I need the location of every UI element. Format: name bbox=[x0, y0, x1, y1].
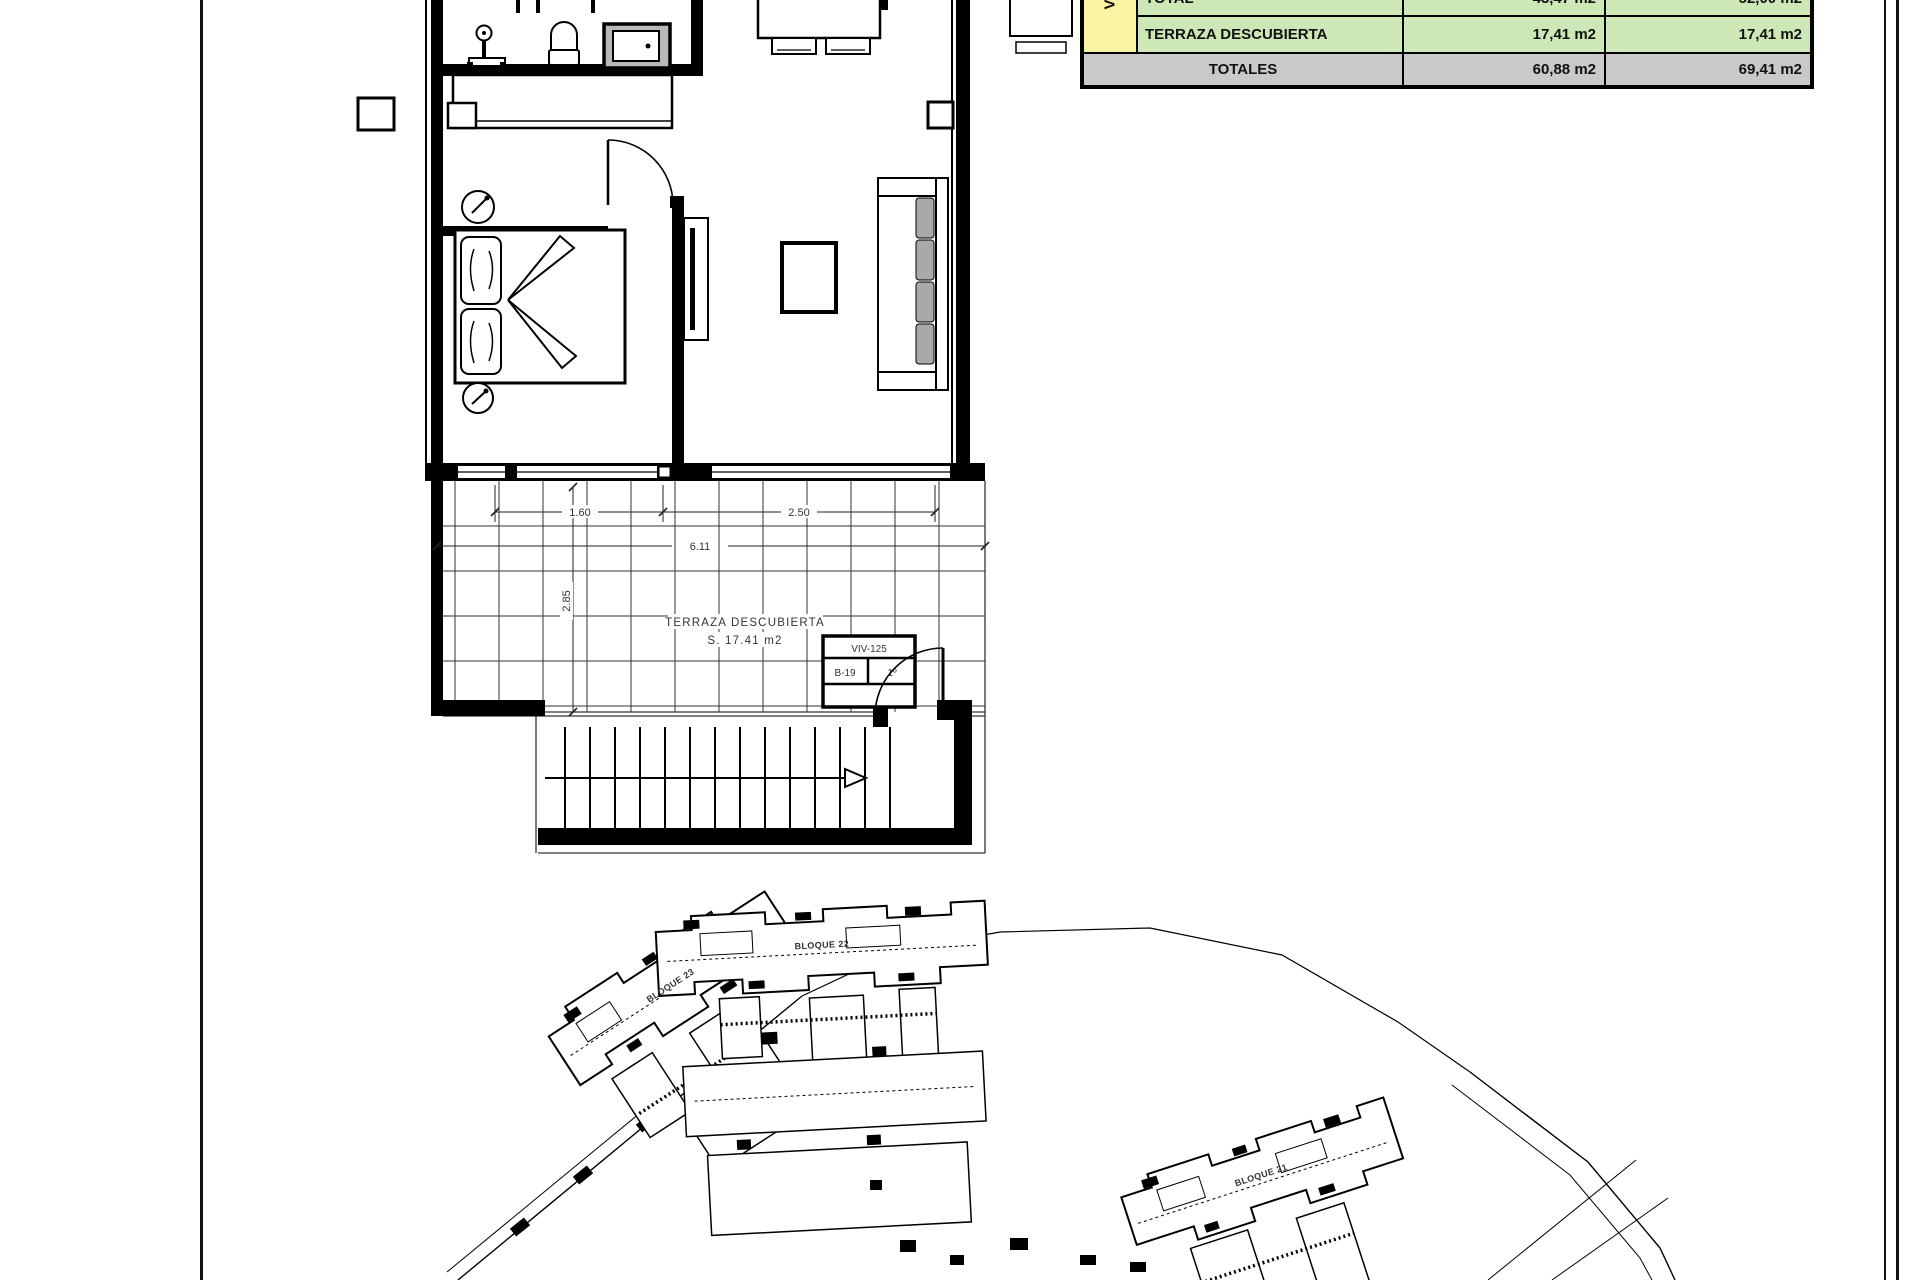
row-terraza-util: 17,41 m2 bbox=[1403, 16, 1605, 53]
exterior-pillar bbox=[358, 98, 394, 130]
sofa bbox=[878, 178, 948, 390]
staircase bbox=[545, 727, 890, 828]
group-rotated-label: V bbox=[1102, 0, 1119, 10]
bathroom-fixtures bbox=[467, 22, 670, 68]
unit-block: B-19 bbox=[834, 668, 856, 679]
balcony-stub bbox=[1010, 0, 1072, 36]
row-terraza-label: TERRAZA DESCUBIERTA bbox=[1137, 16, 1403, 53]
unit-stamp: VIV-125 B-19 1º bbox=[823, 636, 915, 707]
tv-cabinet bbox=[684, 218, 708, 340]
row-total-const: 52,00 m2 bbox=[1605, 0, 1811, 16]
wardrobe bbox=[358, 75, 672, 130]
dim-terrace-depth: 2.85 bbox=[561, 590, 573, 611]
dimension-labels: 1.60 2.50 6.11 2.85 bbox=[560, 505, 817, 620]
stair-direction-arrow bbox=[845, 769, 866, 787]
dim-window-left: 1.60 bbox=[569, 507, 590, 519]
bed bbox=[455, 230, 625, 383]
site-plan: BLOQUE 23 BLOQUE 22 BLOQUE 21 bbox=[447, 881, 1675, 1280]
svg-text:TERRAZA DESCUBIERTA: TERRAZA DESCUBIERTA bbox=[665, 617, 825, 629]
pillow bbox=[461, 237, 501, 304]
toilet bbox=[551, 22, 577, 52]
sink-base bbox=[469, 58, 505, 66]
building-bloque-21 bbox=[1117, 1097, 1438, 1280]
dim-facade-total: 6.11 bbox=[690, 541, 711, 553]
svg-text:S. 17.41 m2: S. 17.41 m2 bbox=[707, 635, 782, 647]
unit-number: VIV-125 bbox=[851, 644, 887, 655]
row-terraza-const: 17,41 m2 bbox=[1605, 16, 1811, 53]
pillow bbox=[461, 309, 501, 374]
row-total-label: TOTAL bbox=[1137, 0, 1403, 16]
row-total-util: 43,47 m2 bbox=[1403, 0, 1605, 16]
totals-util: 60,88 m2 bbox=[1403, 53, 1605, 86]
totals-const: 69,41 m2 bbox=[1605, 53, 1811, 86]
terrace-label: TERRAZA DESCUBIERTA S. 17.41 m2 bbox=[665, 614, 825, 647]
coffee-table bbox=[782, 243, 836, 312]
areas-table-group-cell: V bbox=[1083, 0, 1137, 53]
dim-window-right: 2.50 bbox=[788, 507, 809, 519]
dining-table bbox=[758, 0, 880, 54]
bedroom-door bbox=[608, 140, 673, 205]
totals-label: TOTALES bbox=[1083, 53, 1403, 86]
drawing-canvas: 1.60 2.50 6.11 2.85 TERRAZA DESCUBIERTA … bbox=[0, 0, 1920, 1280]
building-bloque-22 bbox=[655, 901, 1001, 1238]
areas-table: V TOTAL 43,47 m2 52,00 m2 TERRAZA DESCUB… bbox=[1080, 0, 1814, 89]
sheet-page: 1.60 2.50 6.11 2.85 TERRAZA DESCUBIERTA … bbox=[0, 0, 1920, 1280]
right-wall-window bbox=[928, 0, 1072, 128]
